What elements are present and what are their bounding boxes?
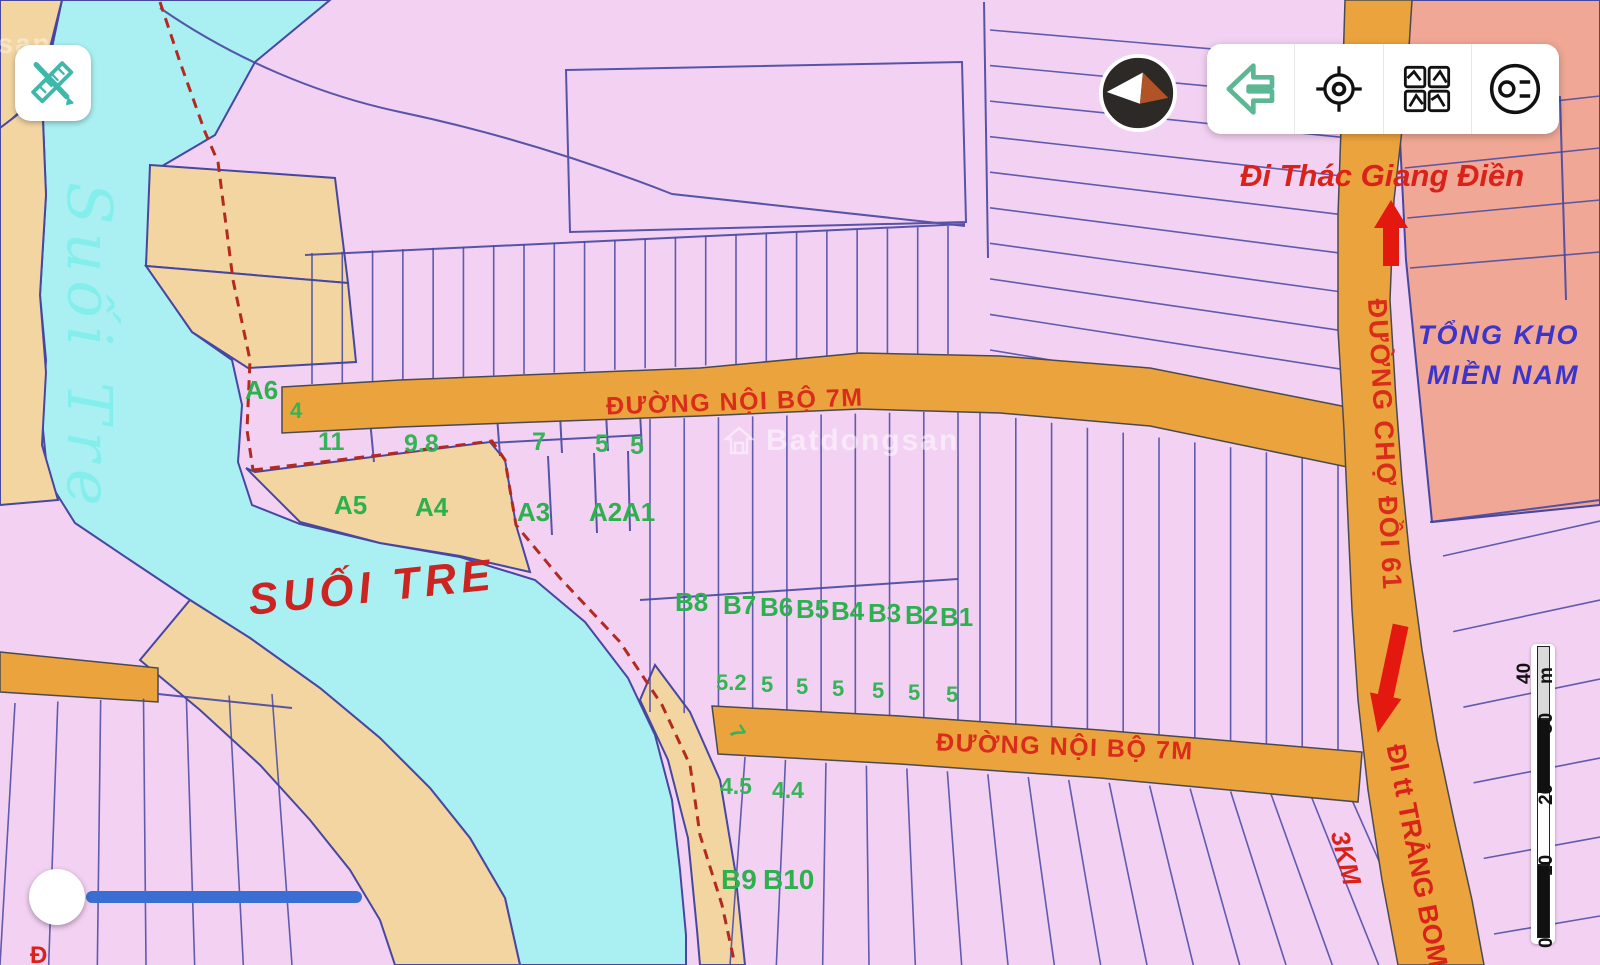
measure-line [86,891,362,903]
ruler-pencil-icon [24,54,82,112]
back-arrow-icon [1223,61,1279,117]
dim-label: 4.5 [720,775,752,798]
dim-label: 5 [796,676,808,698]
scale-label-40: 40 m [1514,642,1558,684]
plot-label-b10: B10 [763,866,814,894]
plot-label-b8: B8 [675,589,708,615]
river-label-vertical: Suối Tre [58,182,120,514]
plot-label-a6: A6 [245,377,278,403]
dim-label: 5 [761,674,773,696]
partial-label-bottom: Đ [30,944,47,965]
gps-target-icon [1313,63,1365,115]
legend-circle-icon [1487,61,1543,117]
direction-north-label: Đi Thác Giang Điền [1240,160,1524,191]
area-label-line1: TỔNG KHO [1418,322,1580,349]
plot-label-b7: B7 [723,592,756,618]
compass-button[interactable] [1097,52,1179,134]
dim-label: 11 [318,430,344,455]
dim-label: 5.2 [716,672,747,694]
back-button[interactable] [1207,44,1294,134]
plot-label-b1: B1 [940,604,973,630]
scale-label-20: 20 [1536,784,1558,805]
plot-label-b4: B4 [831,598,864,624]
dim-label: 5 [630,434,644,459]
plot-label-a3: A3 [517,499,550,525]
dim-label: 4 [290,400,302,422]
map-view[interactable]: Suối Tre SUỐI TRE ĐƯỜNG NỘI BỘ 7M ĐƯỜNG … [0,0,1600,965]
plot-label-b2: B2 [905,602,938,628]
locate-button[interactable] [1294,44,1382,134]
watermark: Batdongsan [722,424,959,458]
plot-label-b9: B9 [721,866,757,894]
plot-label-b5: B5 [796,596,829,622]
measure-handle[interactable] [29,869,85,925]
dim-label: 5 [946,684,958,706]
dim-label: 5 [832,678,844,700]
compass-icon [1097,52,1179,134]
map-tiles-icon [1401,63,1453,115]
legend-button[interactable] [1471,44,1559,134]
watermark-house-icon [722,424,756,458]
dim-label: 7 [532,430,546,455]
dim-label: 4.4 [772,779,804,802]
plot-label-a1: A1 [622,499,655,525]
dim-label: 5 [872,680,884,702]
plot-label-a2: A2 [589,499,622,525]
map-canvas[interactable] [0,0,1600,965]
dim-label: 5 [595,432,609,457]
map-type-button[interactable] [1383,44,1471,134]
plot-label-a5: A5 [334,492,367,518]
area-label-line2: MIỀN NAM [1427,362,1580,389]
plot-label-a4: A4 [415,494,448,520]
scale-label-30: 30 [1536,713,1558,734]
measure-tool-button[interactable] [15,45,91,121]
scale-label-10: 10 [1536,855,1558,876]
dim-label: 5 [908,682,920,704]
dim-label: 9.8 [404,432,439,457]
map-toolbar [1207,44,1559,134]
plot-label-b3: B3 [868,600,901,626]
plot-label-b6: B6 [760,594,793,620]
scale-label-0: 0 [1536,937,1558,948]
